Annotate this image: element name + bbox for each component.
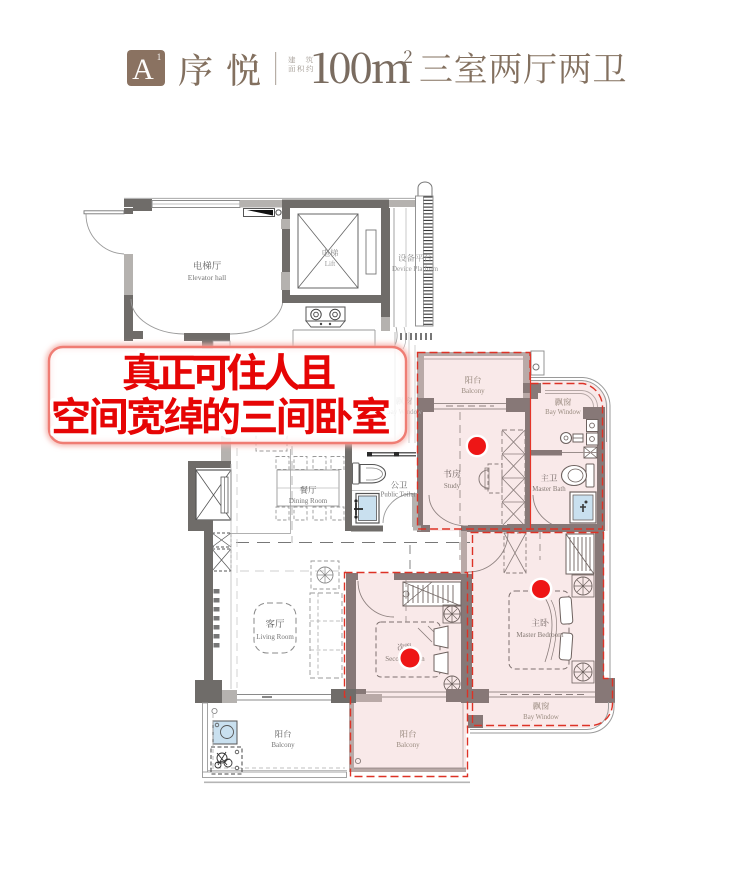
svg-text:Living Room: Living Room (256, 633, 294, 641)
svg-text:Master Bedroom: Master Bedroom (516, 631, 564, 639)
svg-text:Dining Room: Dining Room (289, 497, 328, 505)
svg-text:1: 1 (157, 52, 162, 62)
svg-text:Lift: Lift (325, 260, 336, 268)
svg-text:Balcony: Balcony (271, 741, 295, 749)
svg-text:Public Toilet: Public Toilet (381, 492, 416, 499)
svg-text:Bay Window: Bay Window (545, 409, 581, 416)
svg-text:Master Bath: Master Bath (532, 486, 566, 493)
svg-text:Bay Window: Bay Window (523, 714, 559, 721)
svg-text:Balcony: Balcony (396, 741, 420, 749)
svg-text:Elevator hall: Elevator hall (188, 273, 227, 282)
svg-text:Device Platform: Device Platform (392, 265, 439, 273)
svg-text:A: A (132, 53, 154, 86)
svg-text:Balcony: Balcony (461, 387, 485, 395)
svg-text:Study: Study (444, 482, 461, 490)
